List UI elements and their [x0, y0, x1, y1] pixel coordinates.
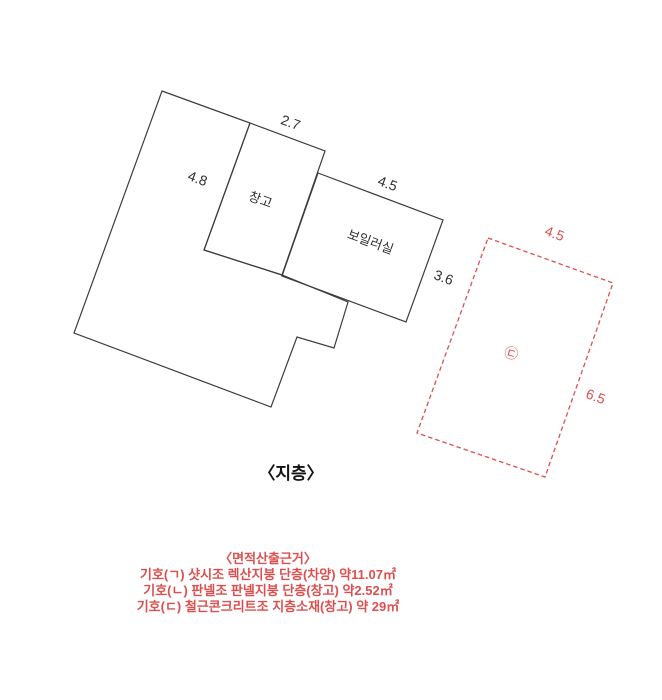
area-note-line: 기호(ㄱ) 샷시조 렉산지붕 단층(차양) 약11.07㎡ [38, 567, 498, 583]
area-note-line: 기호(ㄷ) 철근콘크리트조 지층소재(창고) 약 29㎡ [38, 599, 498, 615]
area-notes: 〈면적산출근거〉 기호(ㄱ) 샷시조 렉산지붕 단층(차양) 약11.07㎡ 기… [38, 551, 498, 615]
dim-boiler-right: 3.6 [432, 266, 456, 288]
area-note-line: 기호(ㄴ) 판넬조 판넬지붕 단층(창고) 약2.52㎡ [38, 583, 498, 599]
main-building-outline [74, 91, 348, 407]
floor-caption: 〈지층〉 [258, 463, 323, 483]
dim-main-left: 4.8 [186, 167, 210, 189]
dim-annex-right: 6.5 [584, 385, 608, 407]
annex-symbol: ㉢ [502, 344, 520, 363]
floor-plan: 4.8 2.7 4.5 3.6 4.5 6.5 창고 보일러실 ㉢ 〈지층〉 [0, 0, 662, 530]
boiler-room-outline [282, 173, 443, 322]
dim-boiler-top: 4.5 [376, 172, 400, 194]
room-label-storage: 창고 [247, 189, 275, 211]
room-label-boiler: 보일러실 [345, 227, 395, 257]
dim-annex-top: 4.5 [543, 222, 567, 244]
area-notes-title: 〈면적산출근거〉 [38, 551, 498, 567]
dim-storage-top: 2.7 [279, 111, 303, 133]
